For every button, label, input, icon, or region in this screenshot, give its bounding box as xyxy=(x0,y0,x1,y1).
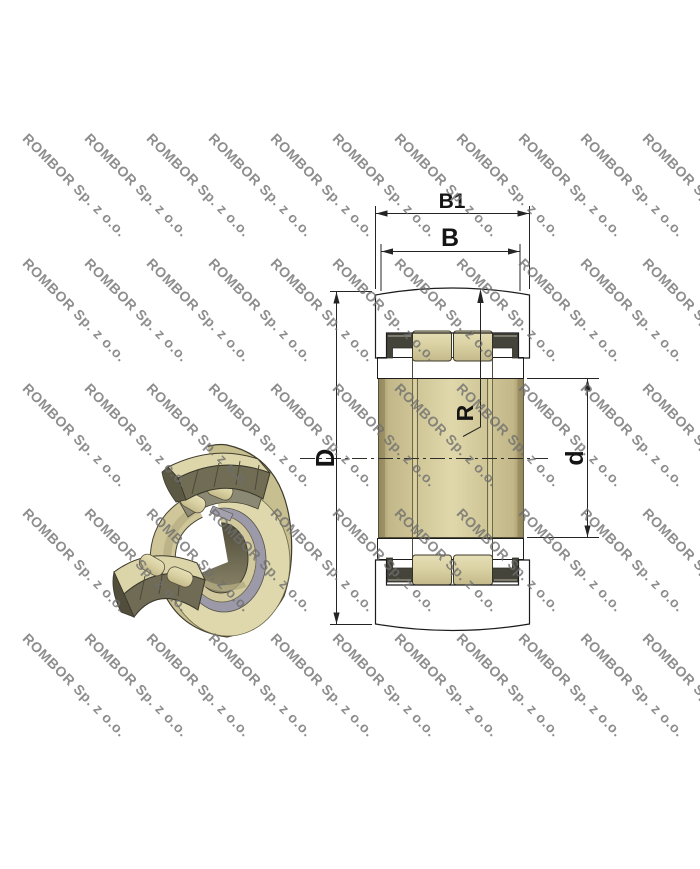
bearing-cross-section: B1 B D d R xyxy=(300,190,599,631)
dimension-b: B xyxy=(381,224,520,291)
dim-label-crown-radius: R xyxy=(452,404,478,421)
dim-label-outer-diameter: D xyxy=(310,449,340,468)
dim-label-bore-diameter: d xyxy=(561,450,589,465)
dim-label-b: B xyxy=(441,224,459,252)
bearing-3d-view xyxy=(113,445,292,638)
bearing-drawing: B1 B D d R xyxy=(0,0,700,869)
drawing-canvas: B1 B D d R xyxy=(0,0,700,869)
dim-label-b1: B1 xyxy=(439,190,466,213)
